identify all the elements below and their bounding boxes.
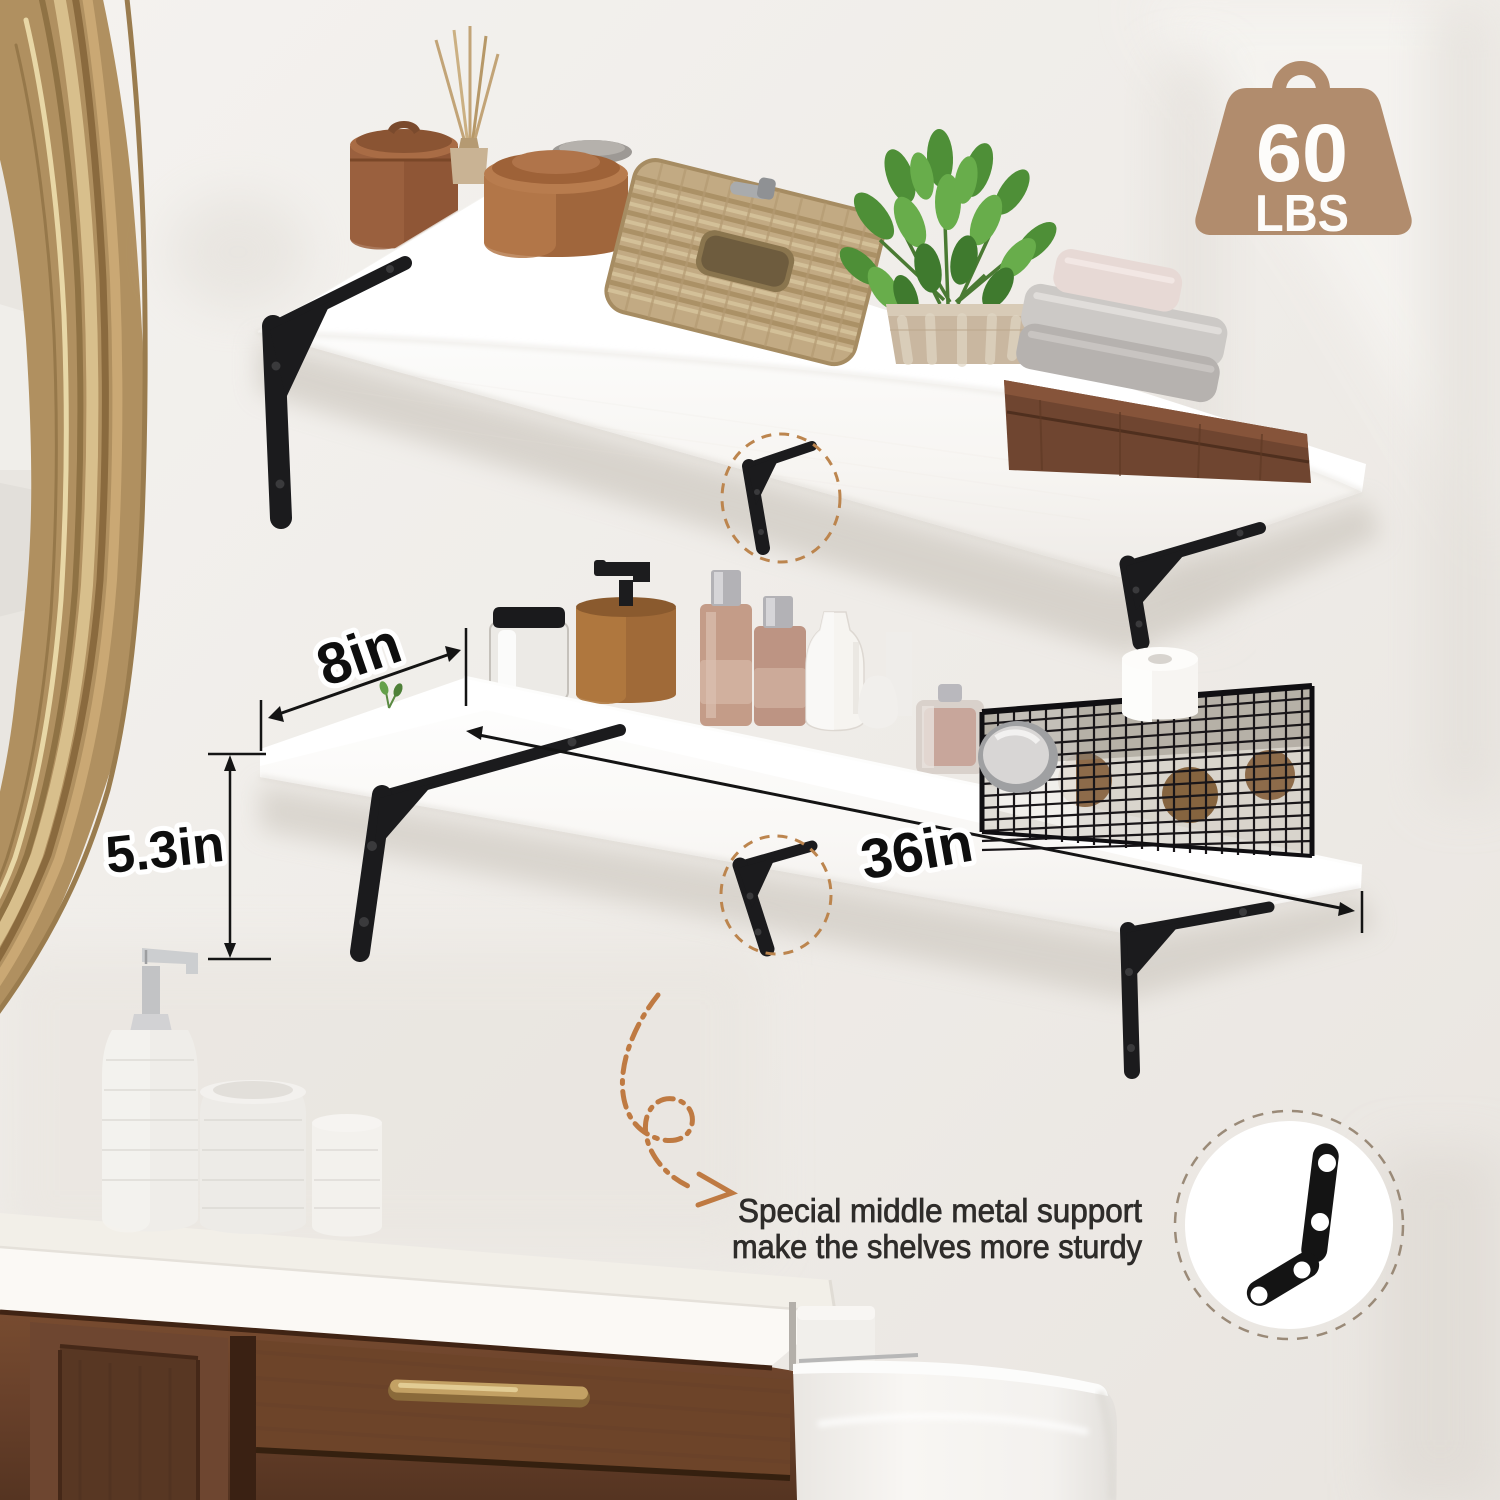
svg-text:Special middle metal support: Special middle metal support xyxy=(738,1192,1142,1229)
svg-text:LBS: LBS xyxy=(1255,185,1349,243)
svg-text:make the shelves more sturdy: make the shelves more sturdy xyxy=(732,1228,1142,1265)
svg-text:5.3in: 5.3in xyxy=(103,815,227,885)
